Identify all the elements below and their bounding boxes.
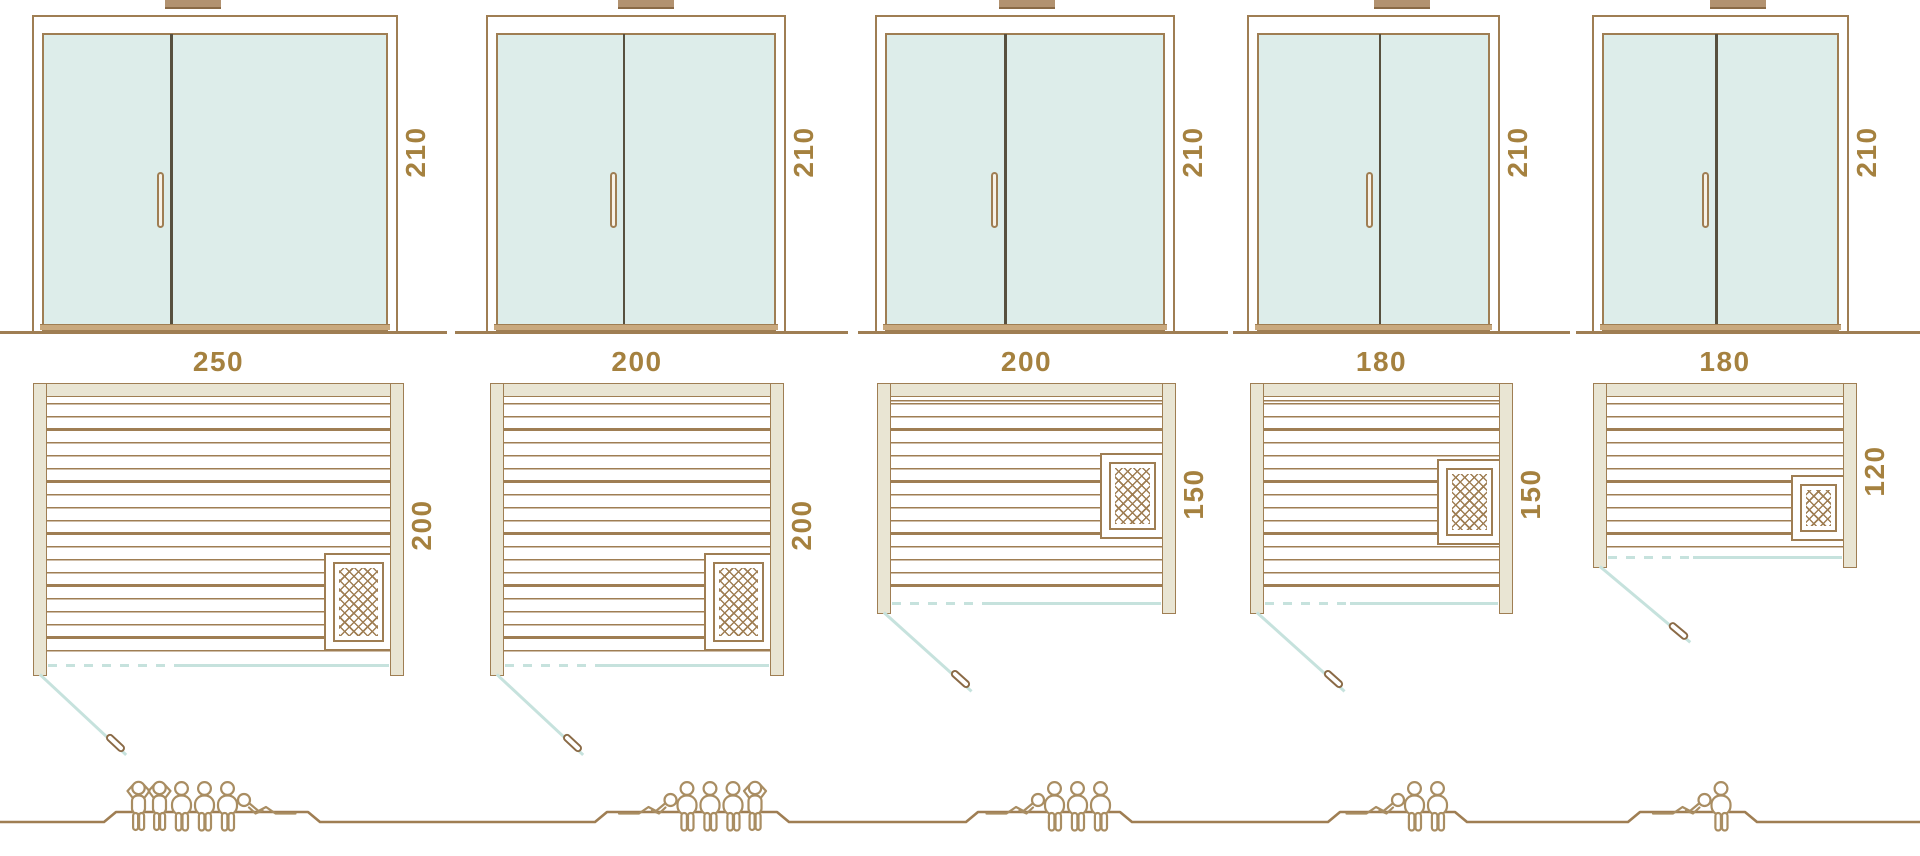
person-sitting-icon <box>724 782 743 830</box>
door-divider <box>623 34 626 330</box>
door-handle-icon <box>991 172 998 228</box>
heater-icon <box>1446 468 1493 536</box>
capacity-figures-row <box>0 750 1920 856</box>
plan-interior-benches <box>47 397 390 657</box>
capacity-group <box>1347 782 1448 830</box>
heater-icon <box>1800 484 1837 532</box>
width-dimension-label: 200 <box>490 346 784 378</box>
person-standing-icon <box>149 782 171 830</box>
heater-niche <box>704 553 770 651</box>
heater-mesh <box>339 568 378 636</box>
person-sitting-icon <box>172 782 191 830</box>
person-lying-icon <box>1347 794 1405 814</box>
person-sitting-icon <box>1045 782 1064 830</box>
plan-wall-right <box>770 383 784 676</box>
sauna-size-diagram: 2102502002102002002102001502101801502101… <box>0 0 1920 856</box>
person-lying-icon <box>1653 794 1711 814</box>
height-dimension-label: 210 <box>1851 126 1883 177</box>
person-sitting-icon <box>678 782 697 830</box>
capacity-group <box>619 782 766 831</box>
plan-glass-line <box>602 664 769 667</box>
plan-wall-right <box>1162 383 1176 614</box>
depth-dimension-label: 200 <box>786 499 818 550</box>
plan-interior-benches <box>1264 397 1499 595</box>
heater-niche <box>1100 453 1162 539</box>
ground-line <box>0 331 447 334</box>
person-lying-icon <box>238 794 296 814</box>
depth-dimension-label: 120 <box>1859 445 1891 496</box>
person-standing-icon <box>744 782 766 830</box>
heater-niche <box>1791 475 1843 541</box>
plan-wall-left <box>1250 383 1264 614</box>
door-cap <box>1374 0 1430 9</box>
plan-wall-left <box>877 383 891 614</box>
height-dimension-label: 210 <box>1502 126 1534 177</box>
plan-wall-top <box>33 383 404 397</box>
heater-icon <box>333 562 384 642</box>
door-glass <box>496 33 776 331</box>
door-handle-icon <box>1702 172 1709 228</box>
door-cap <box>999 0 1055 9</box>
person-sitting-icon <box>1068 782 1087 830</box>
door-cap <box>618 0 674 9</box>
plan-glass-line <box>1693 556 1842 559</box>
ground-line <box>455 331 848 334</box>
door-glass <box>885 33 1165 331</box>
person-sitting-icon <box>1428 782 1447 830</box>
plan-glass-line <box>991 602 1161 605</box>
door-sill <box>1600 324 1841 330</box>
plan-interior-benches <box>504 397 770 657</box>
depth-dimension-label: 200 <box>406 499 438 550</box>
door-glass <box>1602 33 1839 331</box>
width-dimension-label: 180 <box>1593 346 1857 378</box>
heater-icon <box>713 562 764 642</box>
plan-wall-top <box>1250 383 1513 397</box>
plan-door-dashed-line <box>48 664 170 667</box>
person-lying-icon <box>238 794 296 814</box>
door-sill <box>40 324 390 330</box>
plan-wall-right <box>390 383 404 676</box>
door-swing-handle-icon <box>949 669 971 690</box>
height-dimension-label: 210 <box>400 126 432 177</box>
person-lying-icon <box>619 794 677 814</box>
plan-door-dashed-line <box>1265 602 1352 605</box>
door-handle-icon <box>157 172 164 228</box>
plan-wall-top <box>490 383 784 397</box>
door-cap <box>165 0 221 9</box>
plan-glass-line <box>174 664 389 667</box>
plan-wall-left <box>490 383 504 676</box>
person-sitting-icon <box>1405 782 1424 830</box>
ground-line <box>1576 331 1920 334</box>
plan-door-dashed-line <box>892 602 991 605</box>
door-sill <box>494 324 778 330</box>
plan-door-dashed-line <box>505 664 602 667</box>
person-sitting-icon <box>1091 782 1110 830</box>
depth-dimension-label: 150 <box>1515 468 1547 519</box>
door-handle-icon <box>1366 172 1373 228</box>
person-sitting-icon <box>1712 782 1731 830</box>
capacity-group <box>987 782 1111 830</box>
heater-mesh <box>1806 490 1831 526</box>
plan-wall-right <box>1499 383 1513 614</box>
heater-mesh <box>1115 468 1150 524</box>
door-sill <box>883 324 1167 330</box>
plan-interior-benches <box>891 397 1162 595</box>
plan-interior-benches <box>1607 397 1843 549</box>
plan-wall-top <box>1593 383 1857 397</box>
person-standing-icon <box>128 782 150 830</box>
height-dimension-label: 210 <box>788 126 820 177</box>
heater-mesh <box>719 568 758 636</box>
width-dimension-label: 200 <box>877 346 1176 378</box>
capacity-group <box>128 782 296 831</box>
person-sitting-icon <box>701 782 720 830</box>
door-divider <box>1715 34 1718 330</box>
ground-line <box>858 331 1228 334</box>
plan-door-dashed-line <box>1608 556 1695 559</box>
door-divider <box>1004 34 1007 330</box>
door-glass <box>42 33 388 331</box>
plan-wall-right <box>1843 383 1857 568</box>
heater-niche <box>1437 459 1499 545</box>
door-swing-handle-icon <box>1322 669 1344 690</box>
ground-line <box>1233 331 1570 334</box>
plan-wall-top <box>877 383 1176 397</box>
width-dimension-label: 180 <box>1250 346 1513 378</box>
depth-dimension-label: 150 <box>1178 468 1210 519</box>
person-lying-icon <box>987 794 1045 814</box>
width-dimension-label: 250 <box>33 346 404 378</box>
person-sitting-icon <box>195 782 214 830</box>
height-dimension-label: 210 <box>1177 126 1209 177</box>
plan-wall-left <box>33 383 47 676</box>
heater-icon <box>1109 462 1156 530</box>
plan-wall-left <box>1593 383 1607 568</box>
plan-glass-line <box>1350 602 1498 605</box>
heater-niche <box>324 553 390 651</box>
heater-mesh <box>1452 474 1487 530</box>
door-sill <box>1255 324 1492 330</box>
door-glass <box>1257 33 1490 331</box>
capacity-group <box>1653 782 1731 830</box>
door-handle-icon <box>610 172 617 228</box>
door-swing-handle-icon <box>1667 620 1690 641</box>
door-divider <box>170 34 173 330</box>
door-divider <box>1379 34 1382 330</box>
door-cap <box>1710 0 1766 9</box>
person-sitting-icon <box>218 782 237 830</box>
